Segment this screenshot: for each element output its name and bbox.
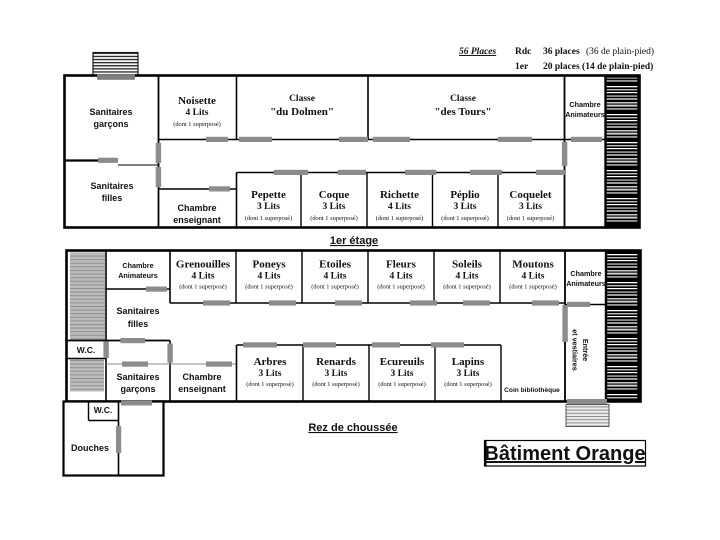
svg-text:Rdc: Rdc	[515, 47, 531, 57]
svg-text:3 Lits: 3 Lits	[325, 369, 348, 379]
svg-text:filles: filles	[102, 193, 123, 203]
svg-text:(dont 1 superposé): (dont 1 superposé)	[441, 215, 489, 222]
svg-text:Coque: Coque	[319, 189, 350, 201]
svg-text:garçons: garçons	[120, 384, 155, 394]
svg-text:4 Lits: 4 Lits	[324, 272, 347, 282]
svg-text:3 Lits: 3 Lits	[457, 369, 480, 379]
svg-text:4 Lits: 4 Lits	[258, 272, 281, 282]
svg-text:Animateurs: Animateurs	[565, 110, 605, 119]
svg-text:1er étage: 1er étage	[330, 235, 378, 247]
svg-text:Entrée: Entrée	[581, 339, 590, 361]
svg-text:Etoiles: Etoiles	[319, 259, 351, 271]
svg-text:1er: 1er	[515, 62, 529, 72]
svg-text:(dont 1 superposé): (dont 1 superposé)	[245, 215, 293, 222]
svg-text:enseignant: enseignant	[178, 384, 226, 394]
svg-text:W.C.: W.C.	[94, 405, 112, 415]
svg-text:4 Lits: 4 Lits	[186, 108, 209, 118]
svg-text:Douches: Douches	[71, 443, 109, 453]
svg-text:Coin bibliothèque: Coin bibliothèque	[504, 387, 560, 394]
svg-text:4 Lits: 4 Lits	[390, 272, 413, 282]
svg-text:Moutons: Moutons	[512, 259, 554, 271]
svg-text:Classe: Classe	[289, 94, 315, 104]
svg-text:Poneys: Poneys	[253, 259, 287, 271]
svg-text:filles: filles	[128, 319, 149, 329]
svg-text:(dont 1 superposé): (dont 1 superposé)	[376, 215, 424, 222]
svg-text:3 Lits: 3 Lits	[323, 202, 346, 212]
svg-text:3 Lits: 3 Lits	[391, 369, 414, 379]
svg-text:"du Dolmen": "du Dolmen"	[270, 106, 334, 118]
svg-text:Coquelet: Coquelet	[509, 189, 552, 201]
svg-text:Pepette: Pepette	[251, 189, 286, 201]
svg-text:Ecureuils: Ecureuils	[380, 356, 425, 368]
svg-text:Renards: Renards	[316, 356, 356, 368]
svg-text:(36 de plain-pied): (36 de plain-pied)	[586, 46, 654, 57]
svg-text:Péplio: Péplio	[450, 189, 480, 201]
svg-text:4 Lits: 4 Lits	[388, 202, 411, 212]
svg-text:3 Lits: 3 Lits	[257, 202, 280, 212]
svg-text:Sanitaires: Sanitaires	[89, 107, 132, 117]
svg-text:W.C.: W.C.	[77, 345, 95, 355]
svg-text:Animateurs: Animateurs	[566, 279, 606, 288]
svg-text:4 Lits: 4 Lits	[522, 272, 545, 282]
svg-text:Noisette: Noisette	[178, 95, 216, 107]
svg-text:(dont 1 superposé): (dont 1 superposé)	[179, 284, 227, 291]
svg-text:"des Tours": "des Tours"	[434, 106, 491, 118]
svg-text:Chambre: Chambre	[570, 269, 601, 278]
svg-text:(dont 1 superposé): (dont 1 superposé)	[246, 381, 294, 388]
svg-text:(dont 1 superposé): (dont 1 superposé)	[509, 284, 557, 291]
svg-text:Chambre: Chambre	[122, 261, 153, 270]
svg-text:Classe: Classe	[450, 94, 476, 104]
svg-text:(dont 1 superposé): (dont 1 superposé)	[443, 284, 491, 291]
svg-text:(dont 1 superposé): (dont 1 superposé)	[377, 284, 425, 291]
svg-text:Animateurs: Animateurs	[118, 271, 158, 280]
svg-text:Richette: Richette	[380, 189, 419, 201]
svg-text:Chambre: Chambre	[182, 372, 221, 382]
svg-text:(dont 1 superposé): (dont 1 superposé)	[311, 284, 359, 291]
svg-text:3 Lits: 3 Lits	[259, 369, 282, 379]
svg-text:Bâtiment Orange: Bâtiment Orange	[484, 443, 645, 465]
svg-text:Chambre: Chambre	[177, 203, 216, 213]
svg-text:Chambre: Chambre	[569, 100, 600, 109]
svg-text:Lapins: Lapins	[452, 356, 485, 368]
svg-text:(dont 1 superposé): (dont 1 superposé)	[378, 381, 426, 388]
svg-text:garçons: garçons	[93, 119, 128, 129]
svg-text:Fleurs: Fleurs	[386, 259, 417, 271]
svg-text:4 Lits: 4 Lits	[456, 272, 479, 282]
svg-text:36 places: 36 places	[543, 47, 580, 57]
svg-text:(dont 1 superposé): (dont 1 superposé)	[310, 215, 358, 222]
svg-text:Grenouilles: Grenouilles	[176, 259, 231, 271]
svg-text:Soleils: Soleils	[452, 259, 483, 271]
svg-text:20 places (14 de plain-pied): 20 places (14 de plain-pied)	[543, 61, 653, 72]
svg-text:(dont 1 superposé): (dont 1 superposé)	[507, 215, 555, 222]
svg-text:enseignant: enseignant	[173, 215, 221, 225]
svg-text:(dont 1 superposé): (dont 1 superposé)	[312, 381, 360, 388]
svg-text:56 Places: 56 Places	[459, 47, 497, 57]
svg-text:3 Lits: 3 Lits	[519, 202, 542, 212]
svg-text:Rez de choussée: Rez de choussée	[308, 422, 397, 434]
svg-text:et vestiaires: et vestiaires	[571, 329, 580, 371]
svg-text:4 Lits: 4 Lits	[192, 272, 215, 282]
svg-text:Sanitaires: Sanitaires	[90, 181, 133, 191]
svg-text:Sanitaires: Sanitaires	[116, 306, 159, 316]
svg-text:Sanitaires: Sanitaires	[116, 372, 159, 382]
svg-text:(dont 1 superposé): (dont 1 superposé)	[173, 121, 221, 128]
svg-text:3 Lits: 3 Lits	[454, 202, 477, 212]
svg-text:(dont 1 superposé): (dont 1 superposé)	[245, 284, 293, 291]
svg-text:Arbres: Arbres	[254, 356, 288, 368]
svg-text:(dont 1 superposé): (dont 1 superposé)	[444, 381, 492, 388]
